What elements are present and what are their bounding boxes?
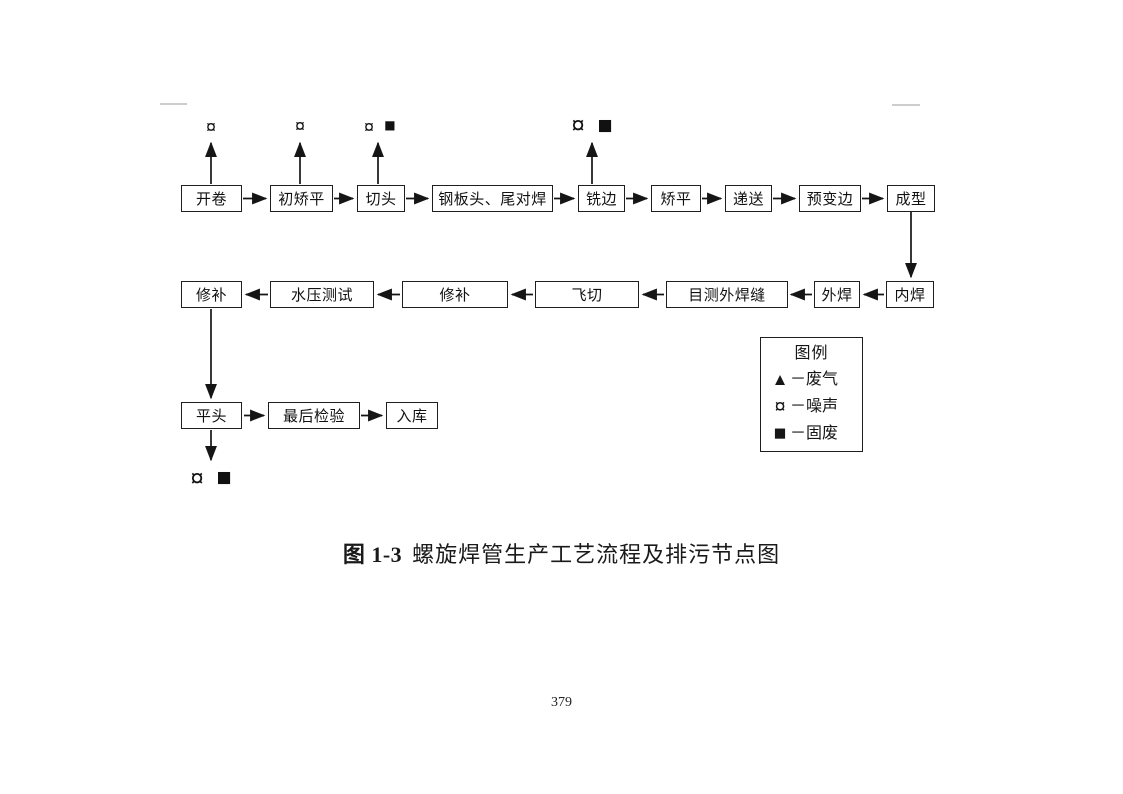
legend-item-label: 噪声: [806, 393, 838, 420]
noise-icon: ¤: [770, 397, 790, 417]
process-box-edge-milling: 铣边: [578, 185, 625, 212]
noise-icon: ¤: [295, 117, 305, 135]
process-box-plate-end-welding: 钢板头、尾对焊: [432, 185, 553, 212]
scan-artifact-left: [160, 103, 187, 105]
process-box-forming: 成型: [887, 185, 935, 212]
process-box-hydrostatic-test: 水压测试: [270, 281, 374, 308]
document-page: ¤ ¤ ¤ ■ ¤ ■ ¤ ■ 开卷 初矫平 切头 钢板头、尾对焊 铣边 矫平 …: [0, 0, 1123, 794]
process-box-delivery: 递送: [725, 185, 772, 212]
legend-separator: －: [790, 366, 806, 393]
exhaust-gas-icon: ▲: [770, 371, 790, 388]
solid-waste-icon: ■: [770, 423, 790, 444]
legend-separator: －: [790, 393, 806, 420]
process-box-pre-bending: 预变边: [799, 185, 861, 212]
process-box-repair-1: 修补: [181, 281, 242, 308]
legend-separator: －: [790, 420, 806, 447]
process-box-flying-cut: 飞切: [535, 281, 639, 308]
process-box-head-cutting: 切头: [357, 185, 405, 212]
noise-icon: ¤: [206, 118, 216, 136]
process-box-warehousing: 入库: [386, 402, 438, 429]
solid-waste-icon: ■: [216, 466, 231, 491]
process-box-final-inspection: 最后检验: [268, 402, 360, 429]
flowchart-connectors: [0, 0, 1123, 794]
legend-item-noise: ¤－噪声: [761, 393, 862, 420]
process-box-visual-weld-inspection: 目测外焊缝: [666, 281, 788, 308]
legend-item-solid-waste: ■－固废: [761, 420, 862, 447]
process-box-flat-head: 平头: [181, 402, 242, 429]
legend-box: 图例 ▲－废气 ¤－噪声 ■－固废: [760, 337, 863, 452]
page-number: 379: [0, 695, 1123, 711]
process-box-initial-leveling: 初矫平: [270, 185, 333, 212]
figure-number: 图 1-3: [343, 542, 402, 567]
noise-icon: ¤: [571, 114, 584, 138]
solid-waste-icon: ■: [384, 117, 395, 136]
process-box-leveling: 矫平: [651, 185, 701, 212]
legend-title: 图例: [761, 342, 862, 366]
legend-item-exhaust-gas: ▲－废气: [761, 366, 862, 393]
process-box-outer-welding: 外焊: [814, 281, 860, 308]
noise-icon: ¤: [190, 467, 203, 491]
figure-title: 螺旋焊管生产工艺流程及排污节点图: [412, 542, 780, 567]
process-box-repair-2: 修补: [402, 281, 508, 308]
process-box-uncoiling: 开卷: [181, 185, 242, 212]
legend-item-label: 废气: [806, 366, 838, 393]
noise-icon: ¤: [364, 118, 374, 136]
scan-artifact-right: [892, 104, 920, 106]
solid-waste-icon: ■: [597, 114, 612, 139]
legend-item-label: 固废: [806, 420, 838, 447]
process-box-inner-welding: 内焊: [886, 281, 934, 308]
figure-caption: 图 1-3螺旋焊管生产工艺流程及排污节点图: [0, 537, 1123, 569]
